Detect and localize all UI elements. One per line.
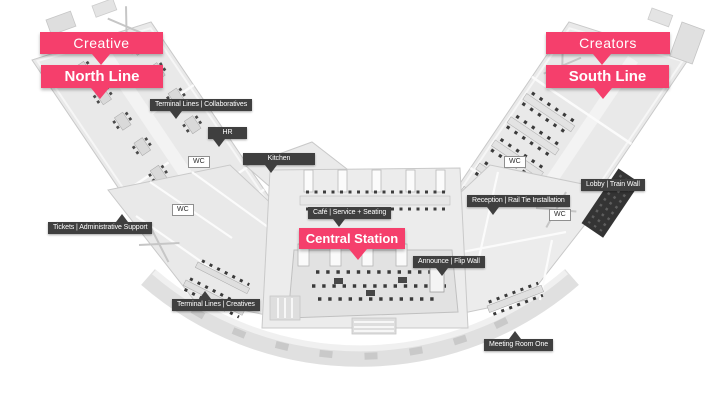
room-label-lobby: Lobby | Train Wall (581, 179, 645, 191)
pointer (593, 54, 611, 65)
room-label-text: Kitchen (268, 155, 291, 162)
line-banner-south: South Line (546, 65, 669, 88)
wc-tag-text: WC (177, 206, 189, 213)
room-label-kitchen: Kitchen (243, 153, 315, 165)
wc-tag-text: WC (509, 158, 521, 165)
room-label-text: Reception | Rail Tie Installation (472, 197, 565, 204)
pointer (436, 268, 448, 276)
pointer (199, 291, 211, 299)
room-label-reception: Reception | Rail Tie Installation (467, 195, 570, 207)
wc-tag-text: WC (193, 158, 205, 165)
line-banner-south-text: South Line (569, 68, 647, 85)
zone-banner-creators: Creators (546, 32, 670, 54)
pointer (116, 214, 128, 222)
wc-tag-text: WC (554, 211, 566, 218)
line-banner-north: North Line (41, 65, 163, 88)
pointer (213, 139, 225, 147)
pointer (487, 207, 499, 215)
room-label-terminal-collaboratives: Terminal Lines | Collaboratives (150, 99, 252, 111)
room-label-hr: HR (208, 127, 247, 139)
zone-banner-creative: Creative (40, 32, 163, 54)
room-label-text: Lobby | Train Wall (586, 181, 640, 188)
wc-tag-reception: WC (549, 209, 571, 221)
floor-plan-page: Creative North Line Creators South Line … (0, 0, 720, 405)
zone-banner-creators-text: Creators (579, 35, 637, 51)
pointer (170, 111, 182, 119)
station-banner-central: Central Station (299, 228, 405, 249)
pointer (333, 219, 345, 227)
wc-tag-south: WC (504, 156, 526, 168)
pointer (594, 88, 612, 99)
room-label-tickets: Tickets | Administrative Support (48, 222, 152, 234)
room-label-cafe: Café | Service + Seating (308, 207, 391, 219)
wc-tag-north: WC (188, 156, 210, 168)
wc-tag-tickets: WC (172, 204, 194, 216)
room-label-meeting-room-one: Meeting Room One (484, 339, 553, 351)
pointer (265, 165, 277, 173)
pointer (509, 331, 521, 339)
room-label-text: Café | Service + Seating (313, 209, 386, 216)
room-label-text: Terminal Lines | Collaboratives (155, 101, 247, 108)
room-label-text: Tickets | Administrative Support (53, 224, 147, 231)
pointer (349, 249, 367, 260)
pointer (91, 88, 109, 99)
line-banner-north-text: North Line (65, 68, 140, 85)
room-label-text: Meeting Room One (489, 341, 548, 348)
room-label-terminal-creatives: Terminal Lines | Creatives (172, 299, 260, 311)
station-banner-central-text: Central Station (306, 231, 398, 246)
zone-banner-creative-text: Creative (73, 35, 129, 51)
pointer (92, 54, 110, 65)
room-label-text: HR (223, 129, 233, 136)
room-label-announce: Announce | Flip Wall (413, 256, 485, 268)
room-label-text: Announce | Flip Wall (418, 258, 480, 265)
room-label-text: Terminal Lines | Creatives (177, 301, 255, 308)
